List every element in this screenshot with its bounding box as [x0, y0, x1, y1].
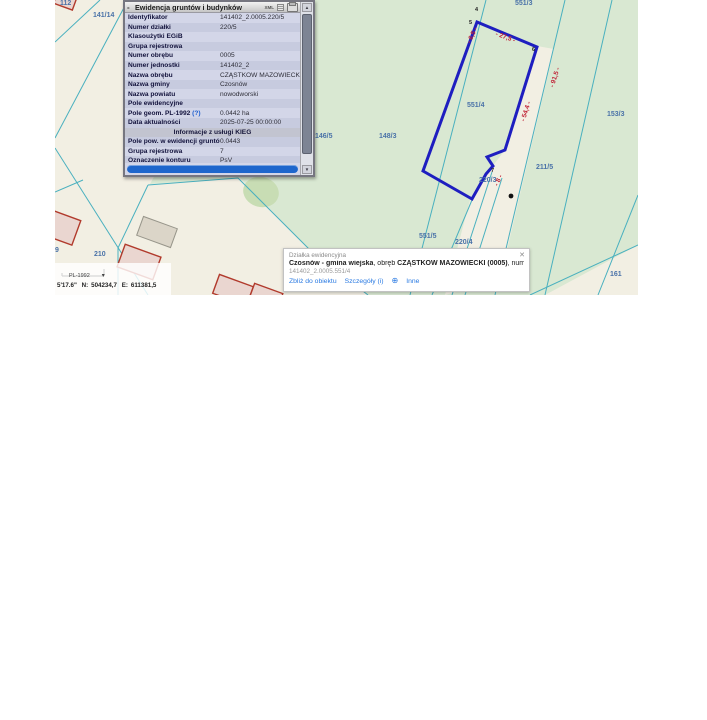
parcel-label-141-14: 141/14 — [93, 12, 114, 19]
parcel-label-551-3: 551/3 — [515, 0, 533, 7]
attribute-value: nowodworski — [220, 91, 300, 98]
boundary-point-7: 7 — [491, 168, 494, 174]
parcel-label-551-5: 551/5 — [419, 233, 437, 240]
parcel-label-551-4: 551/4 — [467, 102, 485, 109]
panel-header[interactable]: - Ewidencja gruntów i budynków XML — [125, 2, 300, 13]
crs-label[interactable]: PL-1992 — [69, 273, 90, 279]
coord-e-value: 611381,5 — [131, 282, 156, 289]
feature-title-sep2: , numer dz. — [508, 260, 524, 267]
feature-title-sep1: , obręb — [373, 260, 397, 267]
attribute-row: Oznaczenie konturuPsV — [125, 156, 300, 163]
point-marker-dot — [509, 194, 514, 199]
help-link[interactable]: (?) — [190, 110, 200, 117]
boundary-point-6: 6 — [532, 47, 535, 53]
scrollbar-thumb[interactable] — [302, 14, 312, 154]
boundary-point-5: 5 — [469, 20, 472, 26]
parcel-label-211-5: 211/5 — [536, 164, 553, 171]
coordinate-statusbar: PL-1992 ▾ 5'17.6" N:504234,7 E:611381,5 — [55, 263, 171, 295]
building-red-2 — [55, 209, 81, 245]
attribute-value: PsV — [220, 157, 300, 163]
attribute-label: Grupa rejestrowa — [125, 148, 220, 155]
attribute-label: Numer działki — [125, 24, 220, 31]
attribute-value: Czosnów — [220, 81, 300, 88]
parcel-label-210: 210 — [94, 251, 106, 258]
parcel-label-146-5: 146/5 — [315, 133, 333, 140]
attribute-row: Numer działki220/5 — [125, 23, 300, 33]
map-canvas[interactable]: 112141/14551/3551/4146/5148/3153/3211/52… — [55, 0, 638, 295]
parcel-label-9: 9 — [55, 247, 59, 254]
attribute-label: Pole pow. w ewidencji gruntów (ha) — [125, 138, 220, 145]
attribute-row: Data aktualności2025-07-25 00:00:00 — [125, 118, 300, 128]
attribute-label: Grupa rejestrowa — [125, 43, 220, 50]
feature-title-municipality: Czosnów - gmina wiejska — [289, 260, 373, 267]
table-view-icon[interactable] — [277, 4, 284, 11]
attribute-row: Pole ewidencyjne — [125, 99, 300, 109]
building-red-5 — [249, 283, 283, 295]
attribute-row: Numer jednostki141402_2 — [125, 61, 300, 71]
coord-e-label: E: — [122, 282, 128, 289]
coord-n-value: 504234,7 — [91, 282, 117, 289]
feature-title-district: CZĄSTKÓW MAZOWIECKI (0005) — [397, 260, 507, 267]
attribute-value: 7 — [220, 148, 300, 155]
attribute-label: Data aktualności — [125, 119, 220, 126]
zoom-to-object-link[interactable]: Zbliż do obiektu — [289, 278, 337, 285]
parcel-label-153-3: 153/3 — [607, 111, 625, 118]
attribute-value: 0005 — [220, 52, 300, 59]
crs-dropdown-chevron-icon[interactable]: ▾ — [102, 272, 105, 279]
feature-actions: Zbliż do obiektu Szczegóły (i) ⊕ Inne — [289, 278, 524, 285]
panel-scrollbar[interactable]: ▲ ▼ — [300, 2, 313, 175]
attribute-row: Klasoużytki EGiB — [125, 32, 300, 42]
building-gray — [137, 216, 178, 247]
attribute-value: 141402_2 — [220, 62, 300, 69]
attribute-row: Pole pow. w ewidencji gruntów (ha)0.0443 — [125, 137, 300, 147]
coord-n-label: N: — [82, 282, 89, 289]
feature-identifier: 141402_2.0005.551/4 — [289, 268, 524, 275]
attribute-value: 220/5 — [220, 24, 300, 31]
attribute-label: Klasoużytki EGiB — [125, 33, 220, 40]
attribute-row: Pole geom. PL-1992 (?)0.0442 ha — [125, 108, 300, 118]
attribute-row: Numer obrębu0005 — [125, 51, 300, 61]
scroll-down-icon[interactable]: ▼ — [302, 165, 312, 174]
attribute-label: Pole ewidencyjne — [125, 100, 220, 107]
attribute-label: Oznaczenie konturu — [125, 157, 220, 163]
panel-section-header: Informacje z usługi KIEG — [125, 128, 300, 138]
attribute-row: Nazwa obrębuCZĄSTKÓW MAZOWIECKI — [125, 70, 300, 80]
geoportal-screenshot: 112141/14551/3551/4146/5148/3153/3211/52… — [0, 0, 707, 720]
mouse-coordinates: 5'17.6" N:504234,7 E:611381,5 — [57, 282, 171, 289]
parcel-label-112: 112 — [60, 0, 71, 7]
boundary-point-4: 4 — [475, 7, 478, 13]
parcel-label-220-4: 220/4 — [455, 239, 473, 246]
other-link[interactable]: Inne — [406, 278, 419, 285]
parcel-label-148-3: 148/3 — [379, 133, 397, 140]
coord-lon-fragment: 5'17.6" — [57, 282, 77, 289]
land-registry-panel: - Ewidencja gruntów i budynków XML Ident… — [123, 0, 315, 177]
attribute-value: CZĄSTKÓW MAZOWIECKI — [220, 72, 300, 79]
feature-info-popup: Działka ewidencyjna ✕ Czosnów - gmina wi… — [283, 248, 530, 292]
attribute-label: Nazwa gminy — [125, 81, 220, 88]
building-red-4 — [213, 274, 254, 295]
attribute-label: Nazwa obrębu — [125, 72, 220, 79]
attribute-label: Numer obrębu — [125, 52, 220, 59]
attribute-label: Pole geom. PL-1992 (?) — [125, 110, 220, 117]
attribute-label: Nazwa powiatu — [125, 91, 220, 98]
attribute-row: Grupa rejestrowa7 — [125, 147, 300, 157]
xml-export-icon[interactable]: XML — [265, 5, 275, 10]
feature-type-label: Działka ewidencyjna — [289, 252, 524, 259]
attribute-value: 2025-07-25 00:00:00 — [220, 119, 300, 126]
panel-toolbar: XML — [265, 3, 299, 12]
print-icon[interactable] — [287, 3, 298, 12]
panel-title: Ewidencja gruntów i budynków — [135, 3, 265, 12]
attribute-value: 141402_2.0005.220/5 — [220, 14, 300, 21]
attribute-row: Nazwa powiatunowodworski — [125, 89, 300, 99]
details-link[interactable]: Szczegóły (i) — [345, 278, 384, 285]
attribute-value: 0.0442 ha — [220, 110, 300, 117]
collapse-icon[interactable]: - — [127, 3, 135, 12]
attribute-label: Numer jednostki — [125, 62, 220, 69]
attribute-row: Nazwa gminyCzosnów — [125, 80, 300, 90]
attribute-row: Grupa rejestrowa — [125, 42, 300, 52]
attribute-label: Identyfikator — [125, 14, 220, 21]
panel-footer-button[interactable] — [127, 165, 298, 173]
scroll-up-icon[interactable]: ▲ — [302, 3, 312, 12]
expand-plus-icon[interactable]: ⊕ — [392, 278, 399, 284]
feature-title: Czosnów - gmina wiejska, obręb CZĄSTKÓW … — [289, 260, 524, 267]
attribute-row: Identyfikator141402_2.0005.220/5 — [125, 13, 300, 23]
close-icon[interactable]: ✕ — [519, 251, 525, 259]
parcel-label-161: 161 — [610, 271, 622, 278]
panel-rows: Identyfikator141402_2.0005.220/5Numer dz… — [125, 13, 300, 163]
attribute-value: 0.0443 — [220, 138, 300, 145]
